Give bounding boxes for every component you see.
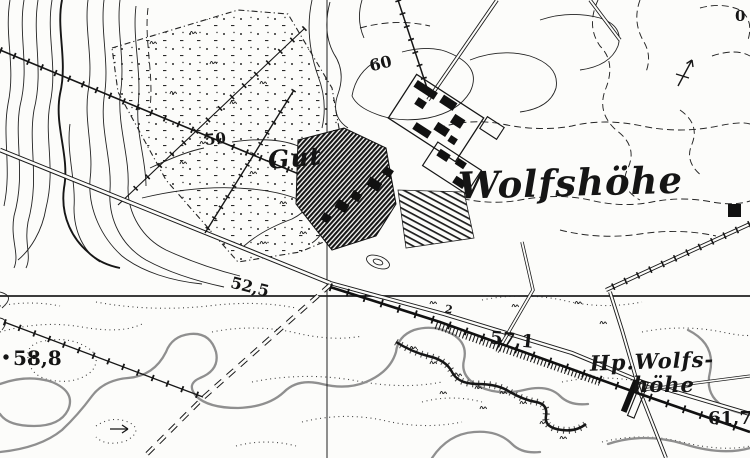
- spot-height-dot: [4, 355, 8, 359]
- map-canvas[interactable]: Wolfshöhe Gut Hp.Wolfs- höhe 58,8 52,5 5…: [0, 0, 750, 458]
- contour-label-50: 50: [204, 129, 227, 149]
- halt-label-line2: höhe: [633, 372, 695, 397]
- topographic-map[interactable]: Wolfshöhe Gut Hp.Wolfs- höhe 58,8 52,5 5…: [0, 0, 750, 458]
- estate-label: Gut: [267, 141, 323, 175]
- spot-height-southwest: 58,8: [13, 346, 62, 370]
- building-right-edge: [728, 204, 741, 217]
- edge-label-top-right: 0: [735, 7, 745, 25]
- spot-height-southeast: 61,7: [708, 408, 750, 429]
- settlement-label: Wolfshöhe: [457, 158, 683, 208]
